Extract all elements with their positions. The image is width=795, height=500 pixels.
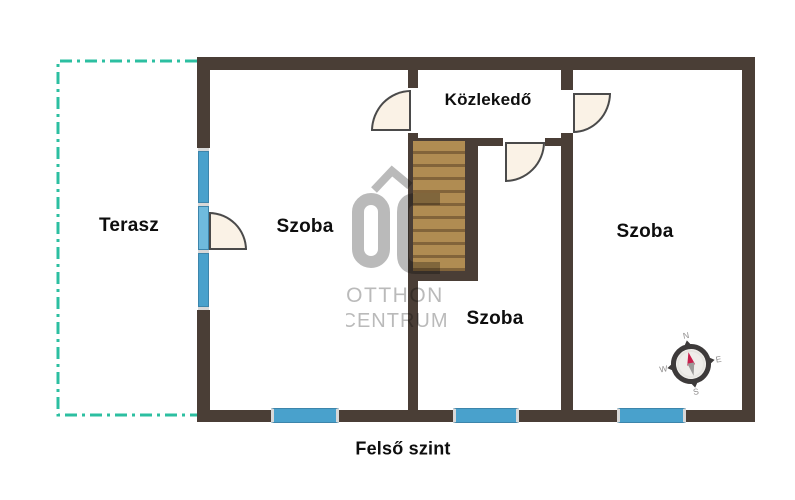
otthon-centrum-watermark: OTTHON CENTRUM [346, 162, 446, 334]
room-label-kozlekedo: Közlekedő [445, 90, 532, 110]
window-terrace-lower [198, 253, 209, 307]
brand-logo-icon [358, 171, 440, 268]
window-terrace-upper [198, 151, 209, 203]
window-middle-room [453, 408, 519, 423]
room-label-terasz: Terasz [99, 215, 159, 237]
room-label-szoba-right: Szoba [617, 221, 674, 243]
svg-text:E: E [715, 354, 723, 365]
wall-left-upper [197, 57, 210, 148]
svg-text:S: S [692, 386, 700, 397]
wall-hall-b [545, 138, 561, 146]
watermark-text-line2: CENTRUM [346, 310, 446, 332]
window-right-room [617, 408, 686, 423]
window-left-room [271, 408, 339, 423]
wall-top [197, 57, 755, 70]
compass-rose-icon: N E S W [657, 330, 725, 398]
svg-text:N: N [682, 330, 690, 341]
wall-right-room-upper [561, 70, 573, 90]
watermark-text-line1: OTTHON [346, 284, 444, 307]
floor-title: Felső szint [355, 439, 450, 460]
wall-left-room-upper [408, 70, 418, 88]
wall-left-lower [197, 310, 210, 422]
svg-text:W: W [659, 363, 669, 374]
window-cap [198, 307, 209, 310]
room-label-szoba-middle: Szoba [467, 308, 524, 330]
wall-right-room-lower [561, 133, 573, 410]
room-label-szoba-left: Szoba [277, 216, 334, 238]
terrace-door-leaf [198, 206, 209, 250]
wall-right [742, 57, 755, 422]
floor-plan: OTTHON CENTRUM N E S W Terasz Szoba Közl… [0, 0, 795, 500]
